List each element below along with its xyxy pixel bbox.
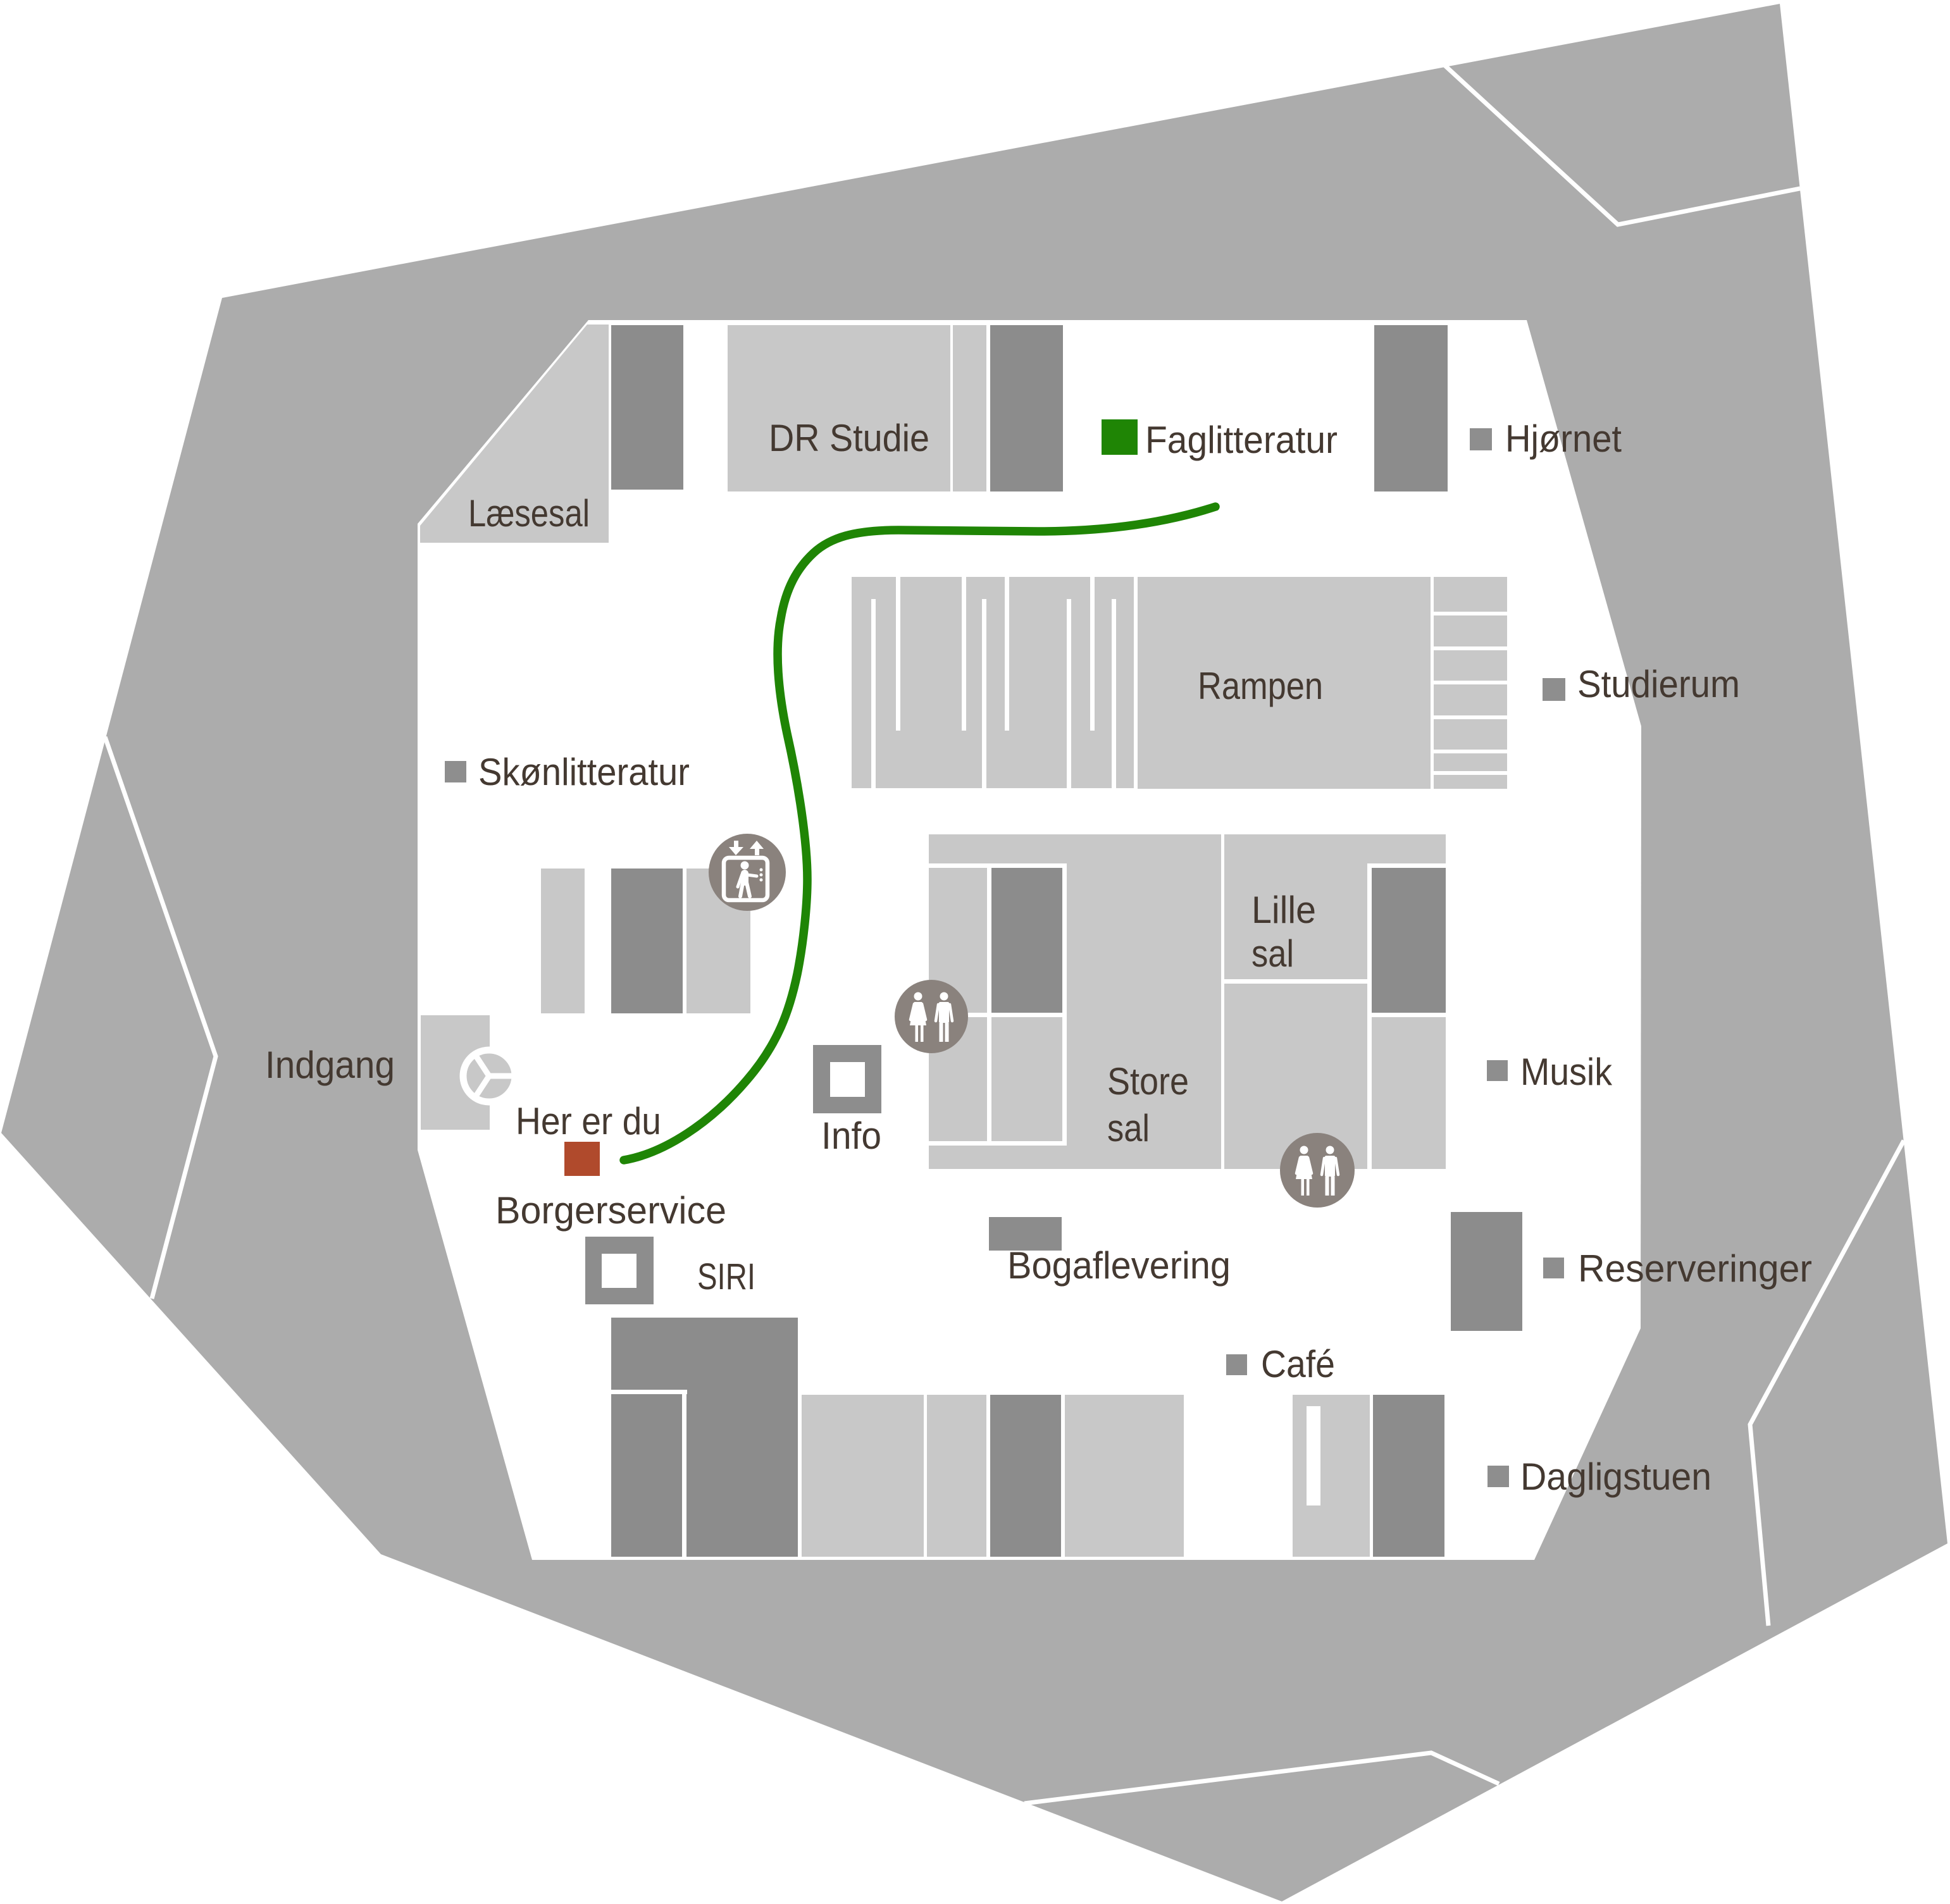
svg-text:Læsesal: Læsesal (468, 492, 590, 535)
svg-text:Bogaflevering: Bogaflevering (1007, 1244, 1231, 1287)
svg-text:Faglitteratur: Faglitteratur (1145, 419, 1338, 461)
svg-text:Store: Store (1107, 1060, 1189, 1103)
svg-text:Café: Café (1261, 1343, 1335, 1385)
svg-text:Her er du: Her er du (516, 1100, 661, 1142)
svg-text:Dagligstuen: Dagligstuen (1520, 1456, 1711, 1498)
svg-text:SIRI: SIRI (697, 1256, 755, 1297)
svg-text:Info: Info (821, 1115, 881, 1157)
svg-text:sal: sal (1251, 932, 1294, 975)
svg-text:Borgerservice: Borgerservice (495, 1189, 726, 1232)
svg-text:Studierum: Studierum (1577, 663, 1740, 705)
svg-text:Skønlitteratur: Skønlitteratur (478, 751, 690, 793)
svg-text:sal: sal (1107, 1107, 1150, 1149)
svg-text:Indgang: Indgang (265, 1044, 395, 1086)
svg-text:Lille: Lille (1251, 889, 1316, 931)
svg-text:Hjørnet: Hjørnet (1505, 417, 1622, 460)
svg-text:Musik: Musik (1520, 1051, 1613, 1093)
svg-text:DR Studie: DR Studie (769, 417, 929, 459)
svg-text:Rampen: Rampen (1198, 665, 1323, 707)
svg-text:Reserveringer: Reserveringer (1578, 1247, 1812, 1290)
